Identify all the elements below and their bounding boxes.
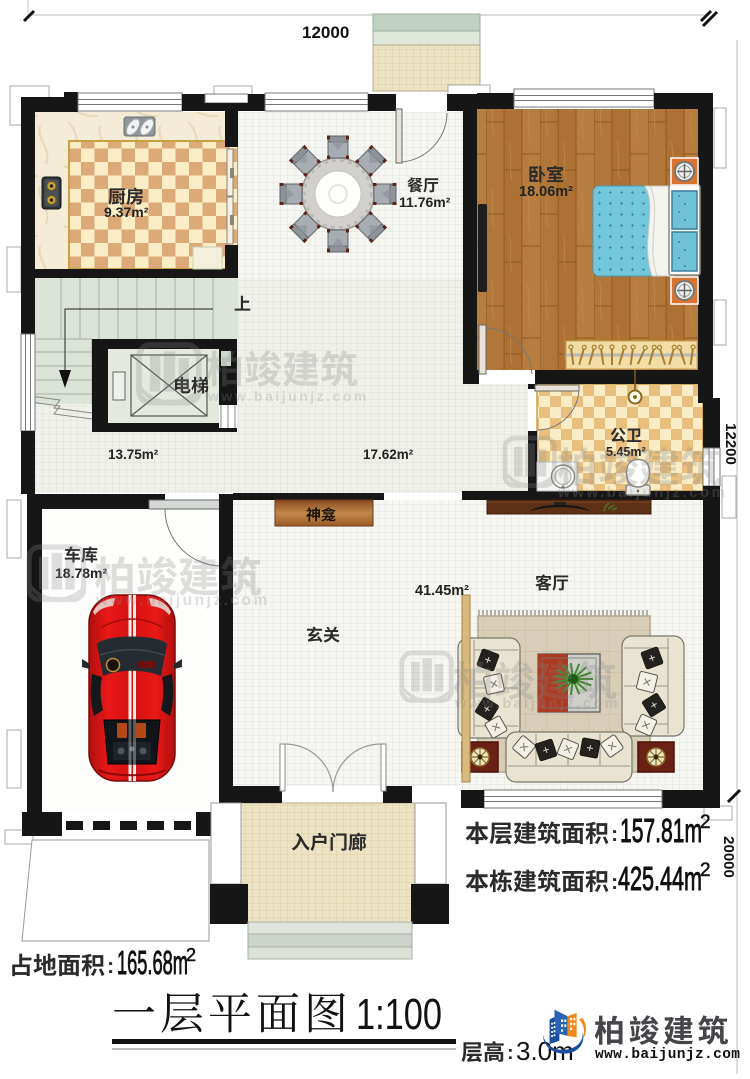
svg-text:13.75m²: 13.75m²: [108, 447, 159, 462]
svg-text:www.baijunjz.com: www.baijunjz.com: [454, 696, 620, 712]
svg-text:2: 2: [186, 945, 196, 965]
svg-text:www.baijunjz.com: www.baijunjz.com: [557, 484, 727, 501]
svg-text:425.44m: 425.44m: [618, 860, 702, 897]
svg-text::: :: [507, 1042, 514, 1064]
svg-text:11.76m²: 11.76m²: [399, 194, 451, 210]
svg-text:www.baijunjz.com: www.baijunjz.com: [207, 388, 369, 404]
svg-text:12000: 12000: [302, 23, 349, 42]
svg-text:2: 2: [700, 812, 711, 833]
svg-text:41.45m²: 41.45m²: [415, 583, 469, 599]
svg-text::: :: [107, 953, 114, 978]
svg-text:2: 2: [700, 860, 711, 881]
svg-text:12200: 12200: [722, 423, 739, 465]
svg-text:www.baijunjz.com: www.baijunjz.com: [595, 1047, 740, 1063]
svg-text:1:100: 1:100: [356, 990, 442, 1039]
svg-text:18.06m²: 18.06m²: [519, 184, 573, 200]
svg-text:165.68m: 165.68m: [117, 944, 188, 981]
svg-text::: :: [611, 821, 618, 846]
svg-text:www.baijunjz.com: www.baijunjz.com: [95, 592, 270, 609]
svg-text:17.62m²: 17.62m²: [363, 447, 414, 462]
svg-text:9.37m²: 9.37m²: [104, 204, 149, 220]
svg-text:20000: 20000: [720, 836, 737, 878]
svg-text:157.81m: 157.81m: [620, 812, 702, 849]
